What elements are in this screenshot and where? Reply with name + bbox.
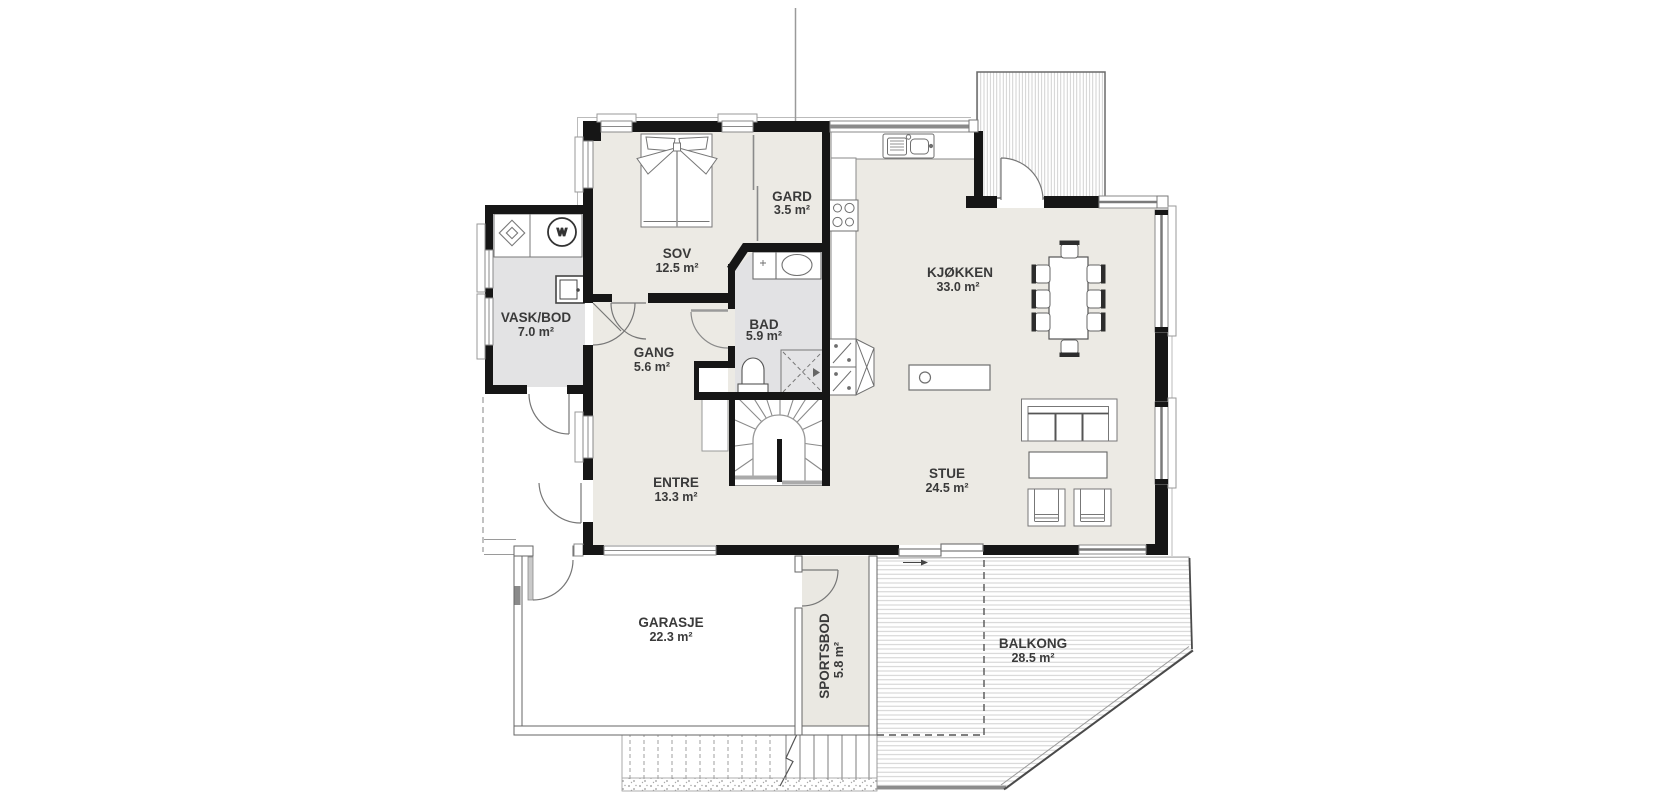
- svg-text:KJØKKEN: KJØKKEN: [927, 265, 993, 280]
- svg-text:SOV: SOV: [663, 246, 692, 261]
- svg-text:BALKONG: BALKONG: [999, 636, 1067, 651]
- svg-text:VASK/BOD: VASK/BOD: [501, 310, 572, 325]
- svg-text:W: W: [557, 228, 567, 239]
- svg-text:GANG: GANG: [634, 345, 675, 360]
- svg-text:22.3 m²: 22.3 m²: [649, 630, 692, 644]
- svg-text:ENTRE: ENTRE: [653, 475, 699, 490]
- svg-text:28.5 m²: 28.5 m²: [1011, 651, 1054, 665]
- svg-text:7.0 m²: 7.0 m²: [518, 325, 554, 339]
- svg-text:5.9 m²: 5.9 m²: [746, 329, 782, 343]
- svg-text:STUE: STUE: [929, 466, 965, 481]
- svg-text:GARASJE: GARASJE: [638, 615, 703, 630]
- svg-text:12.5 m²: 12.5 m²: [655, 261, 698, 275]
- svg-text:3.5 m²: 3.5 m²: [774, 203, 810, 217]
- svg-text:5.6 m²: 5.6 m²: [634, 360, 670, 374]
- svg-text:13.3 m²: 13.3 m²: [654, 490, 697, 504]
- svg-text:SPORTSBOD: SPORTSBOD: [817, 613, 832, 699]
- svg-text:33.0 m²: 33.0 m²: [936, 280, 979, 294]
- svg-text:24.5 m²: 24.5 m²: [925, 481, 968, 495]
- svg-text:GARD: GARD: [772, 189, 812, 204]
- svg-text:5.8 m²: 5.8 m²: [832, 642, 846, 678]
